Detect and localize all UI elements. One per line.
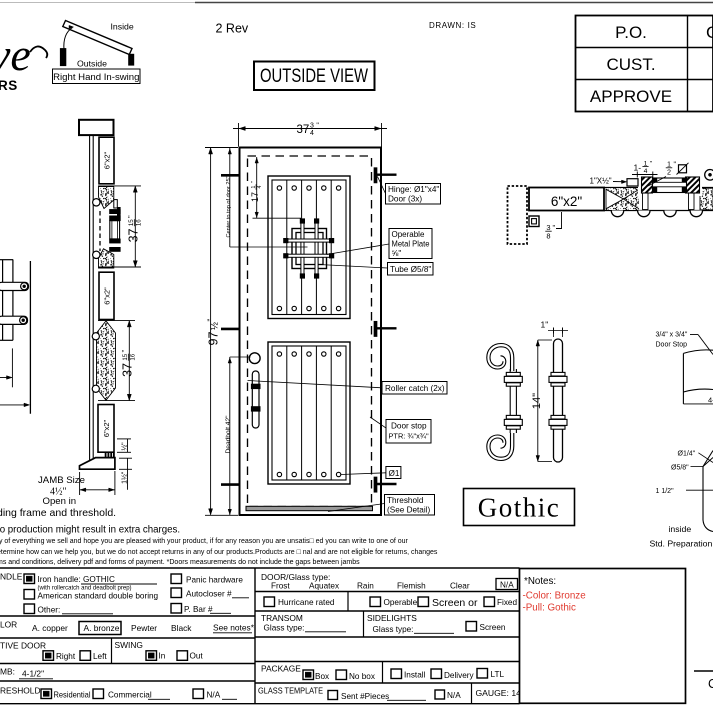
svg-text:TRANSOM: TRANSOM [261,613,303,623]
svg-text:OUTSIDE VIEW: OUTSIDE VIEW [260,66,368,87]
svg-text:4: 4 [257,185,263,188]
svg-text:American standard double borin: American standard double boring [38,592,159,601]
svg-text:Rain: Rain [357,582,374,591]
svg-text:Center to top of door 25": Center to top of door 25" [226,176,232,237]
svg-text:Door (3x): Door (3x) [388,195,422,204]
svg-text:8: 8 [546,232,550,241]
svg-text:APPROVE: APPROVE [590,87,672,106]
svg-text:Ø1: Ø1 [389,469,400,478]
svg-text:Pewter: Pewter [131,623,157,633]
svg-text:14": 14" [531,393,543,409]
svg-text:Ø5/8": Ø5/8" [671,465,689,472]
svg-text:3/4" x 3/4": 3/4" x 3/4" [656,331,688,338]
svg-text:½: ½ [210,322,221,330]
svg-text:97: 97 [207,332,221,346]
svg-text:Autocloser #: Autocloser # [186,590,232,599]
svg-text:Black: Black [171,623,192,633]
svg-text:1-: 1- [634,163,642,173]
svg-text:2: 2 [667,168,671,177]
svg-text:Threshold: Threshold [387,496,424,505]
svg-text:": " [207,319,216,322]
svg-text:Hinge: Ø1"x4": Hinge: Ø1"x4" [388,185,439,194]
svg-text:4: 4 [310,130,314,137]
svg-text:LOR: LOR [0,620,17,630]
svg-text:ve: ve [0,29,31,80]
svg-text:DRAWN: IS: DRAWN: IS [429,21,476,30]
svg-text:": " [673,160,676,169]
svg-text:Left: Left [93,652,107,661]
svg-text:4-1/2": 4-1/2" [22,669,44,679]
svg-text:JAMB Size: JAMB Size [38,475,85,486]
svg-text:A. bronze: A. bronze [84,623,120,633]
svg-text:Iron handle: GOTHIC: Iron handle: GOTHIC [38,575,115,584]
svg-text:4-: 4- [708,395,713,404]
svg-text:Screen: Screen [480,623,506,632]
svg-text:2 Rev: 2 Rev [216,22,249,36]
svg-text:*Notes:: *Notes: [524,576,556,587]
svg-text:Delivery: Delivery [444,671,474,680]
svg-text:1 1/2": 1 1/2" [656,488,675,495]
svg-text:37: 37 [121,363,135,377]
svg-text:Std. Preparation: Std. Preparation [650,539,713,549]
svg-text:-Pull: Gothic: -Pull: Gothic [523,603,576,614]
svg-text:Hurricane rated: Hurricane rated [278,598,335,607]
svg-text:Outside: Outside [77,59,107,69]
svg-text:Tube Ø5/8": Tube Ø5/8" [390,265,431,274]
svg-text:PACKAGE: PACKAGE [261,664,301,674]
svg-text:16: 16 [129,353,136,360]
svg-text:1": 1" [541,320,549,330]
svg-text:GAUGE: 14: GAUGE: 14 [476,688,522,698]
svg-text:Clear: Clear [450,582,470,591]
svg-text:Residential: Residential [54,691,91,700]
svg-text:In: In [159,652,166,661]
svg-text:SIDELIGHTS: SIDELIGHTS [367,613,417,623]
svg-text:P. Bar #: P. Bar # [184,605,213,614]
svg-text:N/A: N/A [500,581,514,590]
svg-text:Glass type:: Glass type: [373,625,414,634]
svg-text:Flemish: Flemish [397,582,426,591]
svg-text:Install: Install [404,671,426,680]
svg-text:inside: inside [669,524,692,534]
svg-text:Fixed: Fixed [497,598,517,607]
svg-text:6"x2": 6"x2" [102,419,111,437]
svg-text:P.O.: P.O. [615,23,647,42]
svg-text:Metal Plate: Metal Plate [392,240,431,249]
svg-text:Door Stop: Door Stop [656,341,688,348]
svg-text:1½": 1½" [121,471,129,484]
svg-text:Operable: Operable [392,230,425,239]
svg-text:Sent #Pieces: Sent #Pieces [341,692,389,701]
svg-text:SWING: SWING [115,640,143,650]
svg-text:Inside: Inside [111,22,134,32]
svg-text:PTR: ¾"x¾": PTR: ¾"x¾" [389,432,430,441]
svg-text:Operable: Operable [384,598,418,607]
svg-text:Other:: Other: [38,606,61,615]
svg-text:⅝": ⅝" [392,249,402,258]
svg-text:TIVE DOOR: TIVE DOOR [0,641,46,651]
svg-text:6"x2": 6"x2" [551,194,583,209]
svg-text:Out: Out [190,652,204,661]
svg-text:A. copper: A. copper [32,623,68,633]
svg-text:etermine how can we help you,: etermine how can we help you, but we do … [0,549,438,556]
svg-text:ty of everything we sell and h: ty of everything we sell and hope you ar… [0,538,409,545]
svg-text:N/A: N/A [447,691,461,700]
svg-text:1"X½": 1"X½" [590,177,612,186]
svg-text:(See Detail): (See Detail) [387,506,431,515]
svg-text:RS: RS [0,78,18,93]
svg-text:Screen or: Screen or [432,597,478,609]
svg-text:Open in: Open in [43,496,77,507]
svg-text:MB:: MB: [0,667,15,677]
svg-text:37: 37 [127,228,141,242]
svg-text:37: 37 [297,124,310,136]
svg-text:Ø1/4": Ø1/4" [678,451,696,458]
svg-text:CUST.: CUST. [606,55,655,74]
svg-text:-Color: Bronze: -Color: Bronze [523,591,587,602]
svg-text:15: 15 [128,219,135,226]
svg-text:See notes*: See notes* [213,623,255,633]
svg-text:½": ½" [121,442,129,451]
svg-text:Deadbolt 42": Deadbolt 42" [225,415,232,454]
svg-text:Commercial: Commercial [108,691,152,700]
svg-text:16: 16 [135,219,142,226]
svg-text:No box: No box [349,672,375,681]
svg-text:NDLE: NDLE [0,572,23,582]
svg-text:ms and conditions, delivery pd: ms and conditions, delivery pdf and form… [0,559,360,566]
svg-text:RESHOLD: RESHOLD [0,686,41,696]
svg-text:GLASS TEMPLATE: GLASS TEMPLATE [258,686,323,696]
svg-text:17: 17 [250,192,260,202]
svg-text:N/A: N/A [207,691,221,700]
svg-text:": " [553,223,556,232]
svg-text:Cu: Cu [708,677,713,691]
svg-text:DOOR/Glass type:: DOOR/Glass type: [261,572,330,582]
svg-text:Panic hardware: Panic hardware [186,576,243,585]
svg-text:15: 15 [122,353,129,360]
svg-text:Door stop: Door stop [391,422,427,431]
svg-text:to production might result in: to production might result in extra char… [0,525,180,536]
svg-text:CU: CU [706,23,713,42]
svg-text:6"x2": 6"x2" [103,151,112,169]
svg-text:6"x2": 6"x2" [103,287,112,305]
svg-text:Gothic: Gothic [478,493,561,523]
svg-text:Aquatex: Aquatex [309,582,339,591]
svg-text:ding frame and threshold.: ding frame and threshold. [0,507,116,519]
svg-text:": " [251,181,257,183]
svg-text:Right: Right [56,652,76,661]
svg-text:Roller catch (2x): Roller catch (2x) [385,384,445,393]
svg-text:LTL: LTL [491,670,505,679]
svg-text:4: 4 [644,168,648,175]
svg-text:Right Hand In-swing: Right Hand In-swing [53,72,139,83]
svg-text:Frost: Frost [271,582,290,591]
svg-text:Glass type:: Glass type: [264,624,305,633]
svg-text:Box: Box [315,672,329,681]
